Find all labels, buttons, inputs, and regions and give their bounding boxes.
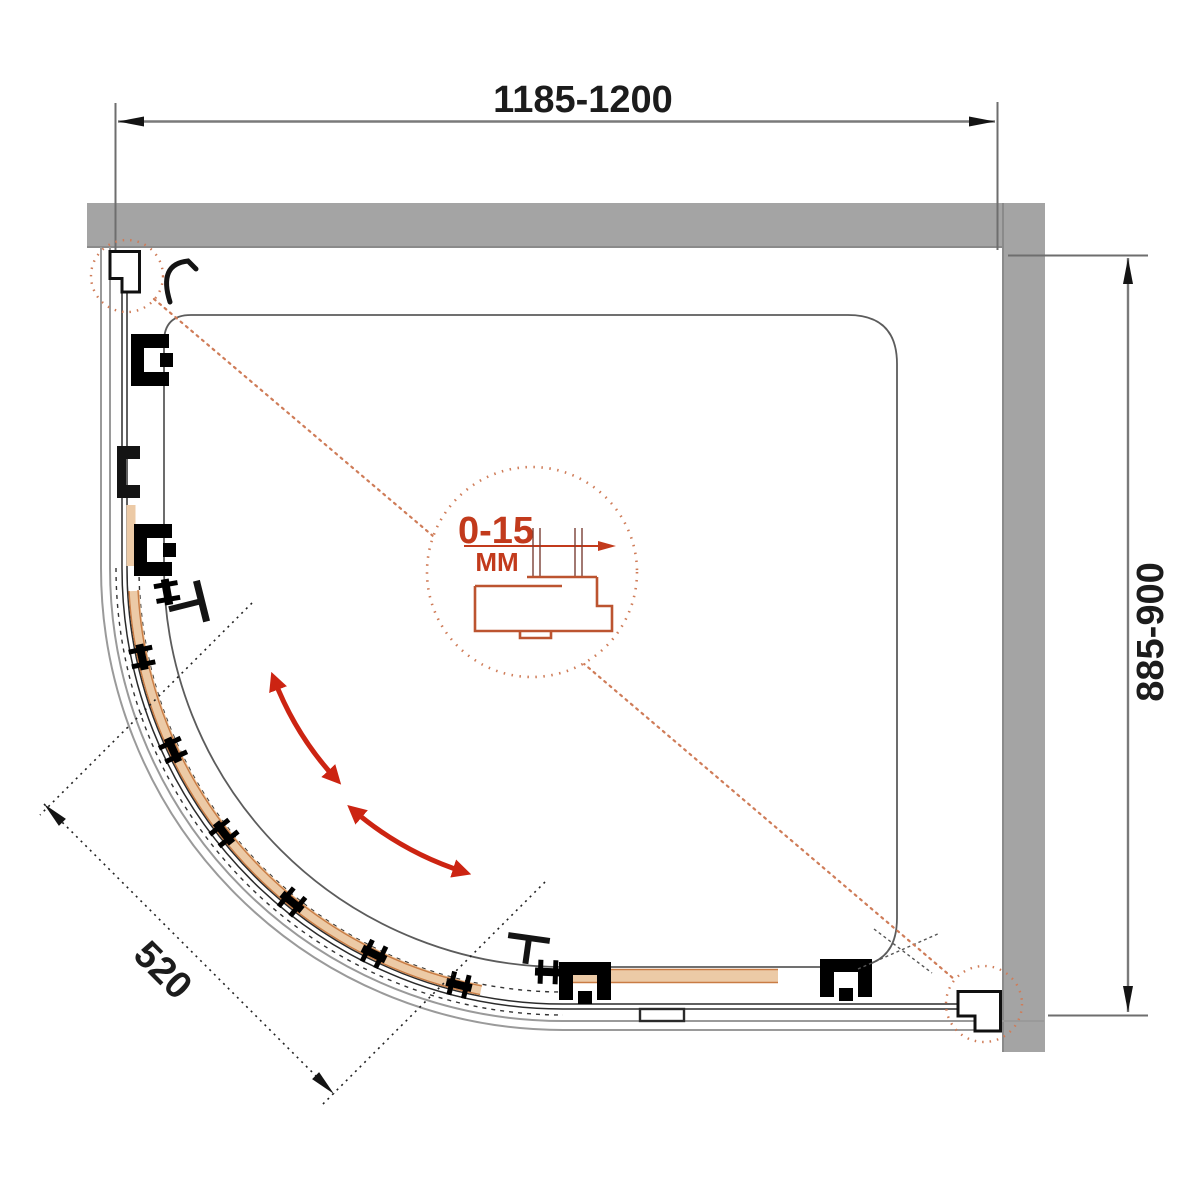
detail-circle (427, 467, 637, 677)
door-roller (443, 970, 474, 1000)
fixed-panel-left (101, 247, 131, 568)
entry-dim-line (44, 804, 334, 1094)
top-door-stopper-arm (167, 261, 196, 302)
entry-dimension: 520 (40, 603, 545, 1105)
entry-dimension-label: 520 (125, 933, 200, 1008)
glass-clamp-small (117, 446, 140, 498)
door-slide-arrow-upper (274, 679, 336, 779)
wall-profile-section (958, 992, 1001, 1032)
door-roller (128, 642, 157, 672)
depth-arrow-bottom (1123, 986, 1133, 1012)
door-roller (535, 960, 562, 985)
door-swing-arrows (274, 679, 464, 872)
width-dimension-label: 1185-1200 (493, 79, 673, 121)
depth-dimension-label: 885-900 (1130, 562, 1172, 701)
entry-ext-upper (40, 603, 252, 815)
width-arrow-right (969, 117, 995, 127)
door-roller (153, 577, 181, 607)
glass-clamp (131, 334, 173, 386)
door-handle-top (164, 580, 210, 630)
door-slide-arrow-lower (353, 810, 464, 872)
glass-clamp (820, 959, 872, 1001)
shower-enclosure-diagram: 1185-1200 885-900 (0, 0, 1200, 1200)
detail-view: 0-15 MM (427, 467, 637, 677)
depth-arrow-top (1123, 258, 1133, 284)
right-wall (1003, 203, 1045, 1052)
glass-clamp (134, 524, 176, 576)
width-arrow-left (118, 117, 144, 127)
technical-drawing-canvas: 1185-1200 885-900 (0, 0, 1200, 1200)
adjustment-unit-label: MM (475, 547, 518, 577)
entry-ext-lower (322, 882, 545, 1105)
wall-profile-section (110, 252, 140, 293)
top-wall (87, 203, 1003, 247)
curved-door-glass (134, 591, 481, 990)
door-handle-bottom (505, 932, 551, 967)
bottom-rail-bracket (640, 1009, 684, 1021)
